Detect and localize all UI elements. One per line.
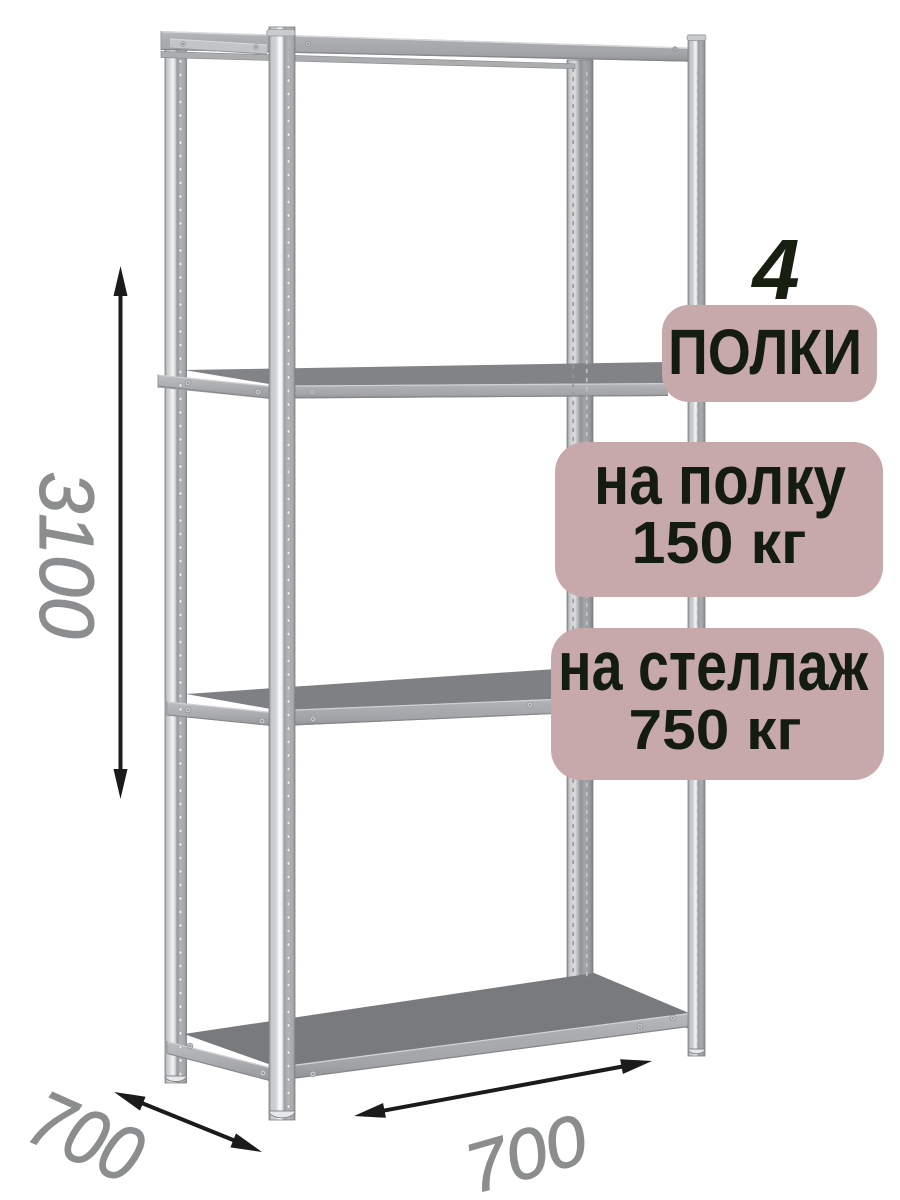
svg-text:4: 4 — [750, 223, 799, 318]
svg-text:150 кг: 150 кг — [632, 510, 807, 576]
svg-text:3100: 3100 — [23, 472, 109, 639]
svg-text:на стеллаж: на стеллаж — [558, 627, 869, 705]
svg-text:ПОЛКИ: ПОЛКИ — [668, 316, 862, 388]
svg-text:750 кг: 750 кг — [629, 698, 802, 762]
svg-text:на полку: на полку — [594, 441, 846, 519]
